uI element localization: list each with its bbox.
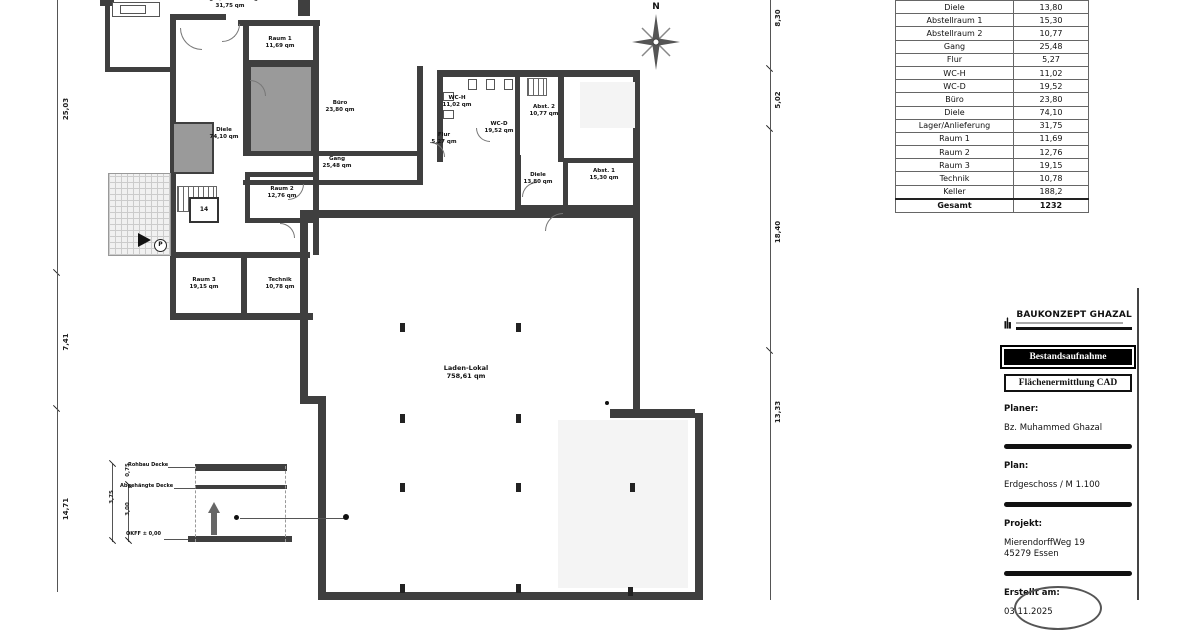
room-name-cell: Raum 2	[896, 146, 1014, 159]
wall-segment	[318, 396, 326, 600]
table-row: Technik10,78	[896, 172, 1089, 185]
wall-segment	[610, 409, 695, 418]
wall-segment	[243, 180, 423, 185]
column-pillar	[516, 584, 521, 593]
dimension-label: 25,03	[62, 92, 70, 126]
room-name-cell: Flur	[896, 53, 1014, 66]
table-row: Diele74,10	[896, 106, 1089, 119]
room-label: WC-H11,02 qm	[429, 95, 485, 109]
dimension-label: 5,02	[774, 83, 782, 117]
room-area-cell: 15,30	[1014, 14, 1089, 27]
area-table: Diele13,80Abstellraum 115,30Abstellraum …	[895, 0, 1089, 213]
room-name: Diele	[196, 127, 252, 134]
wall-segment	[313, 26, 319, 155]
table-row: Gesamt1232	[896, 199, 1089, 213]
direction-arrow-icon	[138, 233, 151, 247]
room-label: Diele74,10 qm	[196, 127, 252, 141]
table-row: Büro23,80	[896, 93, 1089, 106]
column-pillar	[516, 483, 521, 492]
room-label: Gang25,48 qm	[309, 156, 365, 170]
room-name-cell: Diele	[896, 1, 1014, 14]
room-name-cell: Raum 3	[896, 159, 1014, 172]
room-name: Gang	[309, 156, 365, 163]
room-area-cell: 11,02	[1014, 66, 1089, 79]
dimension-label: 14,71	[62, 492, 70, 526]
wall-segment	[170, 313, 313, 320]
detail-dim-total: 3,75	[109, 485, 115, 509]
column-pillar	[630, 483, 635, 492]
drawing-sheet: 14PLager/Anlieferung31,75 qmRaum 111,69 …	[0, 0, 1200, 600]
room-name-cell: WC-D	[896, 80, 1014, 93]
dimension-label: 18,40	[774, 215, 782, 249]
room-name-cell: Diele	[896, 106, 1014, 119]
table-row: WC-H11,02	[896, 66, 1089, 79]
room-name: Abst. 2	[516, 104, 572, 111]
room-area: 23,80 qm	[312, 107, 368, 114]
room-area: 12,76 qm	[254, 193, 310, 200]
room-name: Abst. 1	[576, 168, 632, 175]
table-row: Raum 111,69	[896, 132, 1089, 145]
room-area: 5,27 qm	[416, 139, 472, 146]
room-name: WC-D	[471, 121, 527, 128]
wall-segment	[298, 0, 310, 16]
room-area: 19,15 qm	[176, 284, 232, 291]
room-label: Technik10,78 qm	[252, 277, 308, 291]
column-pillar	[400, 483, 405, 492]
planer-label: Planer:	[1004, 404, 1132, 414]
dimension-label: 7,41	[62, 325, 70, 359]
projekt-city: 45279 Essen	[1004, 549, 1132, 560]
table-row: Flur5,27	[896, 53, 1089, 66]
room-area-cell: 19,15	[1014, 159, 1089, 172]
wall-segment	[241, 258, 247, 316]
room-name: Technik	[252, 277, 308, 284]
room-label: Raum 212,76 qm	[254, 186, 310, 200]
toilet-fixture	[468, 79, 477, 90]
wall-segment	[105, 67, 175, 72]
planer-value: Bz. Muhammed Ghazal	[1004, 423, 1132, 434]
room-label: Laden-Lokal758,61 qm	[431, 364, 501, 380]
column-pillar	[400, 323, 405, 332]
wall-segment	[105, 0, 110, 72]
room-name: Flur	[416, 132, 472, 139]
scan-artifact	[558, 420, 688, 588]
wall-segment	[245, 172, 250, 222]
scan-artifact	[580, 82, 635, 128]
toilet-fixture	[486, 79, 495, 90]
room-name-cell: Büro	[896, 93, 1014, 106]
parking-marker: P	[154, 239, 167, 252]
dimension-label: 8,30	[774, 1, 782, 35]
room-area-cell: 13,80	[1014, 1, 1089, 14]
toilet-fixture	[504, 79, 513, 90]
projekt-address: MierendorffWeg 19	[1004, 538, 1132, 549]
table-row: WC-D19,52	[896, 80, 1089, 93]
toilet-fixture	[443, 110, 454, 119]
room-area-cell: 11,69	[1014, 132, 1089, 145]
room-label: Raum 319,15 qm	[176, 277, 232, 291]
divider	[1004, 571, 1132, 576]
door-arc	[180, 28, 202, 50]
room-label: Büro23,80 qm	[312, 100, 368, 114]
room-label: Diele13,80 qm	[510, 172, 566, 186]
room-area: 10,77 qm	[516, 111, 572, 118]
sheet-border-line	[1137, 288, 1139, 600]
room-area: 11,69 qm	[252, 43, 308, 50]
table-row: Raum 319,15	[896, 159, 1089, 172]
room-area-cell: 10,78	[1014, 172, 1089, 185]
column-pillar	[400, 584, 405, 593]
shaded-room	[249, 65, 313, 153]
plan-value: Erdgeschoss / M 1.100	[1004, 480, 1132, 491]
column-pillar	[516, 414, 521, 423]
room-area-cell: 10,77	[1014, 27, 1089, 40]
table-row: Raum 212,76	[896, 146, 1089, 159]
brand-name: BAUKONZEPT GHAZAL	[1016, 310, 1132, 320]
doc-type-badge: Bestandsaufnahme	[1004, 349, 1132, 365]
rohbau-decke-label: Rohbau Decke	[128, 462, 168, 468]
projekt-label: Projekt:	[1004, 519, 1132, 529]
room-area-cell: 25,48	[1014, 40, 1089, 53]
wall-segment	[313, 155, 319, 255]
room-area: 11,02 qm	[429, 102, 485, 109]
north-label: N	[630, 2, 682, 12]
wall-segment	[437, 70, 640, 77]
room-label: Lager/Anlieferung31,75 qm	[200, 0, 260, 10]
room-area-cell: 188,2	[1014, 185, 1089, 199]
room-name: Laden-Lokal	[431, 364, 501, 372]
room-name-cell: Raum 1	[896, 132, 1014, 145]
room-label: Abst. 210,77 qm	[516, 104, 572, 118]
door-arc	[222, 24, 240, 42]
doc-subtype-badge: Flächenermittlung CAD	[1004, 374, 1132, 392]
okff-label: OKFF ± 0,00	[126, 531, 161, 537]
dimension-label: 13,33	[774, 395, 782, 429]
stairs	[527, 78, 547, 96]
divider	[1004, 444, 1132, 449]
room-name-cell: Technik	[896, 172, 1014, 185]
room-area-cell: 19,52	[1014, 80, 1089, 93]
room-area: 74,10 qm	[196, 134, 252, 141]
room-name-cell: WC-H	[896, 66, 1014, 79]
room-name: Raum 2	[254, 186, 310, 193]
room-area: 13,80 qm	[510, 179, 566, 186]
up-arrow-icon	[208, 502, 220, 513]
room-area-cell: 1232	[1014, 199, 1089, 213]
wall-segment	[238, 20, 320, 26]
room-name-cell: Keller	[896, 185, 1014, 199]
detail-leader-line	[240, 518, 345, 519]
table-row: Abstellraum 115,30	[896, 14, 1089, 27]
room-name-cell: Lager/Anlieferung	[896, 119, 1014, 132]
column-pillar	[516, 323, 521, 332]
divider	[1004, 502, 1132, 507]
room-area: 758,61 qm	[431, 372, 501, 380]
room-label: Flur5,27 qm	[416, 132, 472, 146]
table-row: Diele13,80	[896, 1, 1089, 14]
table-row: Abstellraum 210,77	[896, 27, 1089, 40]
room-name-cell: Abstellraum 1	[896, 14, 1014, 27]
room-name: Raum 3	[176, 277, 232, 284]
room-area: 10,78 qm	[252, 284, 308, 291]
room-area-cell: 5,27	[1014, 53, 1089, 66]
wall-segment	[695, 413, 703, 600]
room-area: 19,52 qm	[471, 128, 527, 135]
wall-segment	[245, 172, 317, 177]
room-name: Diele	[510, 172, 566, 179]
detail-dim-room: 3,00	[125, 497, 131, 521]
table-row: Gang25,48	[896, 40, 1089, 53]
compass-rose: N	[630, 2, 682, 80]
column-pillar	[628, 587, 633, 596]
room-name: Raum 1	[252, 36, 308, 43]
brand-underline	[1016, 327, 1132, 330]
brand-tagline	[1016, 322, 1122, 324]
room-area-cell: 31,75	[1014, 119, 1089, 132]
projekt-value: MierendorffWeg 19 45279 Essen	[1004, 538, 1132, 561]
title-block: BAUKONZEPT GHAZAL Bestandsaufnahme Fläch…	[1004, 310, 1132, 618]
wall-segment	[170, 14, 226, 20]
wall-segment	[563, 158, 640, 163]
survey-dot	[605, 401, 609, 405]
wall-segment	[318, 592, 703, 600]
room-label: Raum 111,69 qm	[252, 36, 308, 50]
room-label: WC-D19,52 qm	[471, 121, 527, 135]
table-row: Keller188,2	[896, 185, 1089, 199]
room-area: 15,30 qm	[576, 175, 632, 182]
table-row: Lager/Anlieferung31,75	[896, 119, 1089, 132]
right-dimension-line	[770, 0, 771, 600]
room-name: WC-H	[429, 95, 485, 102]
room-area: 25,48 qm	[309, 163, 365, 170]
room-label: Abst. 115,30 qm	[576, 168, 632, 182]
building-logo-icon	[1004, 310, 1012, 336]
column-pillar	[400, 414, 405, 423]
room-name: Büro	[312, 100, 368, 107]
plan-label: Plan:	[1004, 461, 1132, 471]
room-area-cell: 23,80	[1014, 93, 1089, 106]
room-area-cell: 12,76	[1014, 146, 1089, 159]
left-dimension-line	[57, 0, 58, 592]
room-name-cell: Gang	[896, 40, 1014, 53]
wall-segment	[170, 252, 310, 258]
compass-star-icon	[630, 12, 682, 74]
room-area-cell: 74,10	[1014, 106, 1089, 119]
kitchen-fixture	[120, 5, 146, 14]
logo: BAUKONZEPT GHAZAL	[1004, 310, 1132, 336]
room-area: 31,75 qm	[200, 3, 260, 10]
door-arc	[280, 223, 295, 238]
wall-segment	[300, 210, 308, 402]
stamp-ellipse	[1014, 586, 1102, 630]
elevator: 14	[189, 197, 219, 223]
room-name-cell: Gesamt	[896, 199, 1014, 213]
room-name-cell: Abstellraum 2	[896, 27, 1014, 40]
wall-segment	[417, 66, 423, 185]
abgehaengte-decke-label: Abgehängte Decke	[120, 483, 173, 489]
wall-segment	[300, 210, 640, 218]
